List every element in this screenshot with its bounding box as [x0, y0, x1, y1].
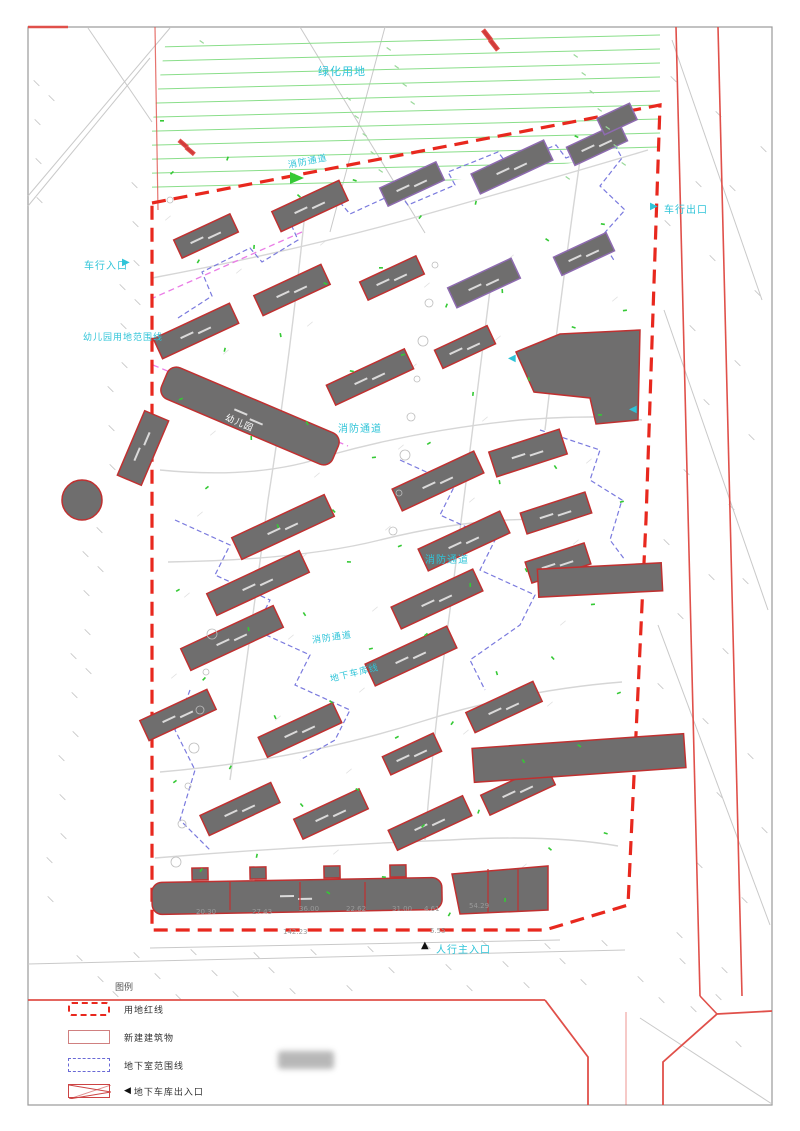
legend-item-site-redline: 用地红线 — [68, 1002, 164, 1016]
side-entrance-arrow-icon: ◀ — [508, 354, 516, 364]
legend-item-new-building: 新建建筑物 — [68, 1030, 174, 1044]
legend-item-basement-line: 地下室范围线 — [68, 1058, 184, 1072]
dimension-label: 27.43 — [252, 908, 272, 916]
dimension-label: 5.55 — [430, 927, 446, 935]
new-building-swatch-icon — [68, 1030, 110, 1044]
vehicle-exit-arrow-icon: ▶ — [650, 202, 658, 212]
pedestrian-main-entrance-arrow-icon: ▲ — [421, 941, 429, 951]
site-plan-drawing — [0, 0, 800, 1131]
dimension-label: 31.00 — [392, 905, 412, 913]
map-label: 消防通道 — [338, 420, 382, 435]
dimension-label: 36.00 — [299, 905, 319, 913]
dimension-label: 142.23 — [283, 928, 308, 936]
dimension-label: 54.29 — [469, 902, 489, 910]
legend-title: 图例 — [115, 980, 133, 993]
garage-ramp-arrow-icon: ◀ — [629, 405, 637, 415]
map-label: 绿化用地 — [318, 63, 366, 79]
dimension-label: 4.61 — [424, 905, 440, 913]
dimension-label: 22.62 — [346, 905, 366, 913]
garage-entry-swatch-icon — [68, 1084, 110, 1098]
basement-line-swatch-icon — [68, 1058, 110, 1072]
blurred-watermark — [278, 1051, 334, 1069]
redline-swatch-icon — [68, 1002, 110, 1016]
dimension-label: 20.30 — [196, 908, 216, 916]
map-label: 消防通道 — [425, 551, 469, 566]
kindergarten-round-wing — [62, 480, 102, 520]
site-plan-page: 绿化用地消防通道车行入口车行出口幼儿园用地范围线消防通道消防通道消防通道地下车库… — [0, 0, 800, 1131]
commercial-building-east — [452, 866, 548, 914]
legend-item-garage-entry: ◀ 地下车库出入口 — [68, 1084, 204, 1098]
map-label: 人行主入口 — [436, 941, 491, 956]
vehicle-entrance-arrow-icon: ▶ — [122, 258, 130, 268]
map-label: 车行出口 — [664, 201, 708, 216]
map-label: 幼儿园用地范围线 — [83, 330, 163, 343]
garage-arrow-icon: ◀ — [124, 1086, 131, 1096]
